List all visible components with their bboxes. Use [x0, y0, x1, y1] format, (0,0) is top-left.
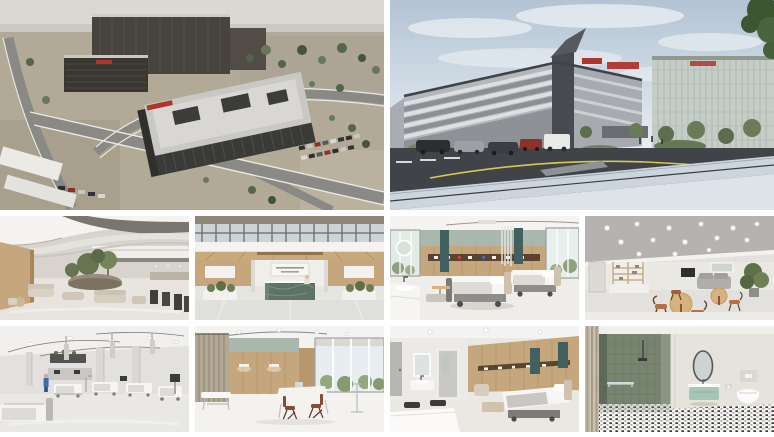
exam-room-render	[195, 326, 384, 432]
sofa	[697, 273, 731, 289]
bench	[426, 294, 446, 302]
slat-curtain	[585, 326, 599, 432]
floor	[195, 300, 384, 320]
door	[589, 262, 605, 292]
oval-mirror	[694, 351, 713, 381]
right-wall	[671, 334, 774, 414]
teal-panel-left	[440, 230, 449, 272]
entrance-hall-image	[195, 216, 384, 320]
round-mirror	[397, 241, 412, 256]
skylight	[195, 224, 384, 242]
wall-art	[711, 263, 733, 272]
overbed-table	[432, 286, 450, 289]
vanity-shadow	[690, 402, 718, 406]
privacy-curtain	[195, 334, 229, 402]
white-fascia	[195, 242, 384, 252]
aerial-campus-image	[0, 0, 384, 210]
wood-soffit	[195, 252, 384, 260]
windows	[315, 338, 384, 392]
single-patient-room-render	[390, 326, 579, 432]
patient-bathroom-render	[585, 326, 774, 432]
shelving-unit	[609, 262, 649, 293]
single-patient-room-image	[390, 326, 579, 432]
mirror-niche	[414, 354, 430, 376]
aerial-campus-render	[0, 0, 384, 210]
headwall	[420, 228, 546, 276]
icu-ward-image	[0, 326, 189, 432]
collage-bottom-row	[0, 326, 774, 432]
receptionist	[305, 275, 309, 279]
family-lounge-image	[585, 216, 774, 320]
atrium-lobby-render	[0, 216, 189, 320]
teal-panel	[558, 342, 568, 368]
double-patient-room-image	[390, 216, 579, 320]
render-collage	[0, 0, 774, 432]
armchair	[474, 384, 489, 396]
wall-tv	[681, 268, 695, 277]
teal-panel	[530, 348, 540, 374]
teal-panel-right	[514, 228, 523, 264]
floor-front	[585, 312, 774, 320]
mosaic-floor	[599, 404, 774, 432]
upper-floor-band	[195, 216, 384, 224]
white-van	[544, 134, 570, 149]
bathroom-doorway	[438, 350, 458, 398]
collage-top-row	[0, 0, 774, 210]
double-patient-room-render	[390, 216, 579, 320]
floor-shadow	[255, 419, 335, 425]
atrium-lobby-image	[0, 216, 189, 320]
foot-bench	[482, 402, 504, 412]
stone-planter-shadow	[68, 278, 122, 290]
entrance-hall-render	[195, 216, 384, 320]
street-view-image	[390, 0, 774, 210]
collage-middle-row	[0, 216, 774, 320]
icu-ward-render	[0, 326, 189, 432]
patient-bathroom-image	[585, 326, 774, 432]
ceiling	[599, 326, 774, 334]
exam-room-image	[195, 326, 384, 432]
family-lounge-render	[585, 216, 774, 320]
street-view-render	[390, 0, 774, 210]
sign-board	[271, 263, 309, 276]
